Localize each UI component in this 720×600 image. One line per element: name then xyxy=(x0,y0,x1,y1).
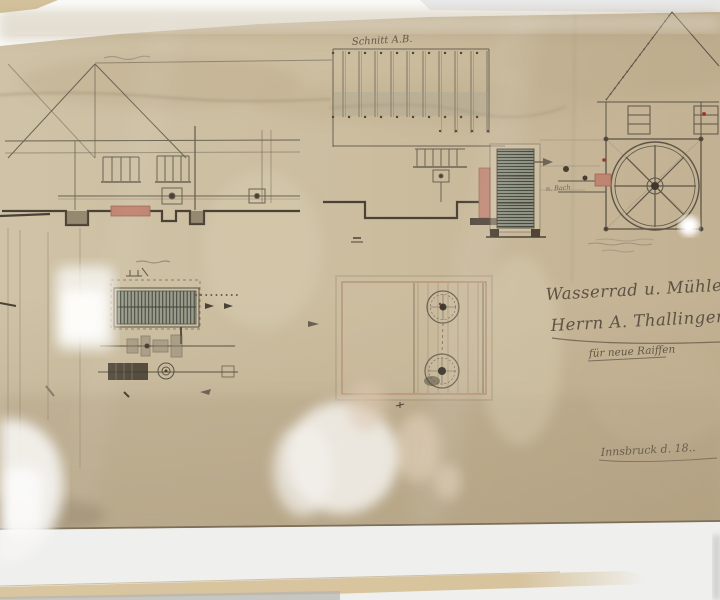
reflection-arm xyxy=(396,414,440,482)
reflection-left-patch xyxy=(56,266,114,350)
reflection-head xyxy=(347,381,387,431)
water-level-wash xyxy=(334,92,488,116)
flume-red-block xyxy=(595,174,611,186)
wheel-hub xyxy=(651,182,659,190)
flash-spot xyxy=(679,216,699,236)
photo-of-framed-drawing: Schnitt A.B. xyxy=(0,0,720,600)
right-edge-shadow xyxy=(713,535,720,600)
framed-drawing-scene: Schnitt A.B. xyxy=(0,0,720,600)
red-accent-dot xyxy=(702,112,706,116)
top-glare-bleed xyxy=(0,16,720,32)
